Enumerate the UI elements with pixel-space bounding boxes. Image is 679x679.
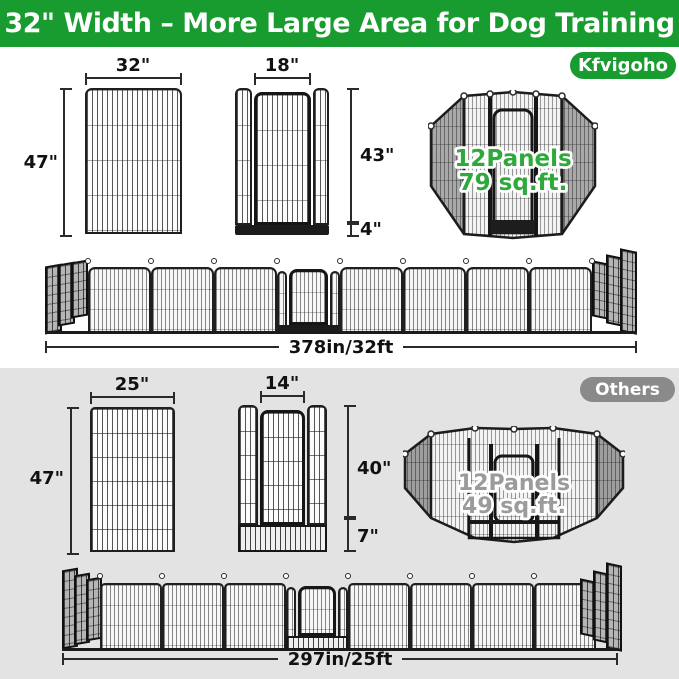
brand-panel-height-label: 47" <box>24 152 58 173</box>
pen-frame-drawing: 12Panels 49 sq.ft. <box>403 426 625 546</box>
pen-panel-count-label: 12Panels <box>458 471 570 496</box>
hinge-pin-icon <box>97 573 103 579</box>
hinge-pin-icon <box>469 573 475 579</box>
brand-badge-label: Kfvigoho <box>578 55 668 76</box>
fence-panel <box>340 267 403 333</box>
brand-gate-doorheight-dimension <box>350 88 352 223</box>
brand-panel-diagram <box>85 88 182 234</box>
hinge-pin-icon <box>283 573 289 579</box>
folded-panel <box>620 248 637 335</box>
brand-panel-width-label: 32" <box>116 55 150 76</box>
row-gate-strip <box>277 271 287 333</box>
others-gate-doorheight-label: 40" <box>357 458 391 479</box>
pen-panel-count-label: 12Panels <box>454 146 571 172</box>
others-gate-doorheight-dimension <box>347 405 349 518</box>
hinge-pin-icon <box>221 573 227 579</box>
title-bar: 32" Width – More Large Area for Dog Trai… <box>0 0 679 47</box>
fence-panel <box>88 267 151 333</box>
page-title: 32" Width – More Large Area for Dog Trai… <box>4 8 674 39</box>
others-gate-diagram <box>238 405 327 552</box>
hinge-pin-icon <box>589 258 595 264</box>
hinge-pin-icon <box>211 258 217 264</box>
row-gate-door <box>298 586 336 636</box>
fence-panel <box>100 583 162 650</box>
fence-panel <box>348 583 410 650</box>
others-gate-width-label: 14" <box>265 373 299 394</box>
others-row-length-dimension: 297in/25ft <box>62 652 618 666</box>
gate-base-bar <box>235 225 329 235</box>
row-gate-door <box>289 269 328 325</box>
hinge-pin-icon <box>337 258 343 264</box>
fence-panel <box>214 267 277 333</box>
fence-panel <box>410 583 472 650</box>
hinge-pin-icon <box>407 573 413 579</box>
others-panel-height-dimension <box>70 407 72 555</box>
gate-door <box>260 410 305 525</box>
gate-tray <box>238 525 327 552</box>
brand-panel-width-dimension <box>85 77 182 79</box>
others-gate-baseheight-dimension <box>347 518 349 552</box>
row-baseline <box>45 331 637 334</box>
fence-panel <box>466 267 529 333</box>
folded-panel <box>606 562 622 651</box>
others-badge-label: Others <box>595 380 660 400</box>
product-comparison-image: 32" Width – More Large Area for Dog Trai… <box>0 0 679 679</box>
brand-gate-diagram <box>235 88 329 235</box>
others-panel-row <box>62 583 618 650</box>
hinge-pin-icon <box>274 258 280 264</box>
fence-panel <box>162 583 224 650</box>
brand-row-length-dimension: 378in/32ft <box>45 340 637 354</box>
others-badge: Others <box>580 377 675 402</box>
others-panel-width-dimension <box>90 396 175 398</box>
brand-badge: Kfvigoho <box>570 52 676 79</box>
brand-gate-baseheight-dimension <box>350 223 352 237</box>
gate-right-strip <box>307 405 327 525</box>
hinge-pin-icon <box>400 258 406 264</box>
pen-area-label: 79 sq.ft. <box>459 170 568 196</box>
others-gate-width-dimension <box>260 395 305 397</box>
brand-panel-height-dimension <box>63 88 65 237</box>
others-panel-diagram <box>90 407 175 552</box>
fence-panel <box>529 267 592 333</box>
dimension-tick <box>635 341 637 353</box>
others-pen-diagram: 12Panels 49 sq.ft. <box>403 426 625 546</box>
pen-right-shade <box>597 434 623 518</box>
fence-panel <box>403 267 466 333</box>
brand-row-length-label: 378in/32ft <box>289 337 394 358</box>
brand-panel-row <box>45 267 637 333</box>
hinge-pin-icon <box>531 573 537 579</box>
brand-gate-width-dimension <box>254 77 311 79</box>
hinge-pin-icon <box>85 258 91 264</box>
dimension-line <box>47 346 279 348</box>
fence-panel <box>224 583 286 650</box>
dimension-tick <box>616 653 618 665</box>
gate-door <box>254 92 311 225</box>
others-gate-baseheight-label: 7" <box>357 526 379 547</box>
fence-panel <box>472 583 534 650</box>
brand-pen-diagram: 12Panels 79 sq.ft. <box>428 90 598 240</box>
brand-gate-width-label: 18" <box>265 55 299 76</box>
pen-area-label: 49 sq.ft. <box>462 494 566 519</box>
hinge-pin-icon <box>463 258 469 264</box>
gate-left-strip <box>235 88 252 225</box>
others-panel-height-label: 47" <box>30 468 64 489</box>
fence-panel <box>151 267 214 333</box>
pen-frame-drawing: 12Panels 79 sq.ft. <box>428 90 598 240</box>
others-row-length-label: 297in/25ft <box>288 649 393 670</box>
pen-gate-tray <box>469 522 559 538</box>
dimension-line <box>403 346 635 348</box>
dimension-line <box>64 658 278 660</box>
pen-left-shade <box>405 434 431 518</box>
brand-gate-baseheight-label: 4" <box>360 219 382 240</box>
brand-gate-doorheight-label: 43" <box>360 145 394 166</box>
hinge-pin-icon <box>159 573 165 579</box>
gate-left-strip <box>238 405 258 525</box>
row-gate-panel <box>277 267 340 333</box>
pen-gate-tray <box>491 220 535 234</box>
folded-panel <box>71 260 88 319</box>
row-gate-strip <box>330 271 340 333</box>
gate-right-strip <box>313 88 329 225</box>
hinge-pin-icon <box>148 258 154 264</box>
others-panel-width-label: 25" <box>115 374 149 395</box>
hinge-pin-icon <box>403 426 625 457</box>
row-gate-panel <box>286 583 348 650</box>
hinge-pin-icon <box>345 573 351 579</box>
hinge-pin-icon <box>526 258 532 264</box>
dimension-line <box>402 658 616 660</box>
